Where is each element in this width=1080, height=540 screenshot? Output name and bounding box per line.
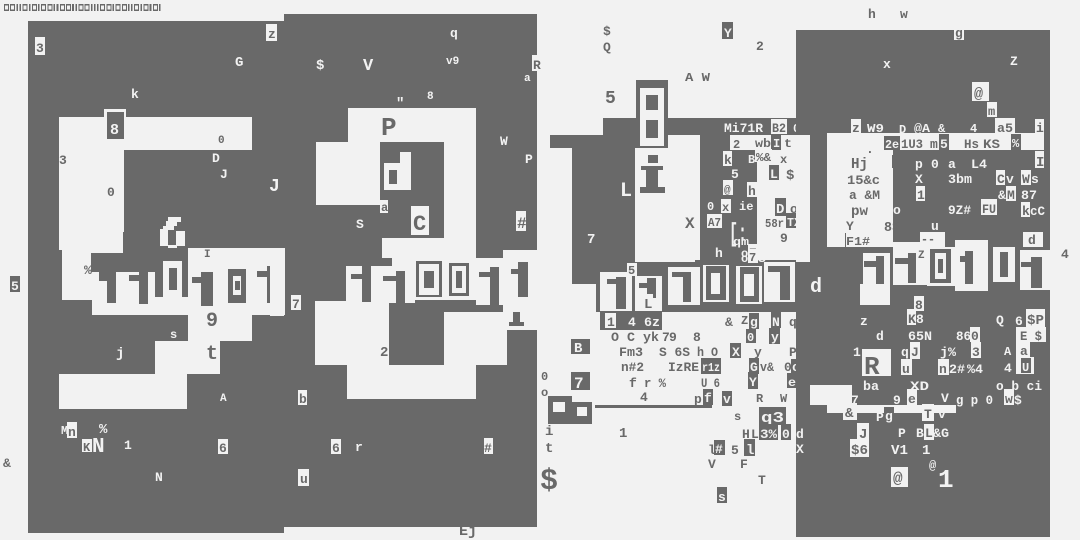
svg-text:i: i: [545, 424, 553, 440]
svg-text:4: 4: [1004, 361, 1012, 376]
svg-text:X: X: [685, 215, 695, 233]
svg-text:d: d: [1028, 233, 1036, 248]
svg-text:I: I: [1036, 155, 1044, 171]
svg-text:z: z: [268, 27, 276, 42]
svg-text:": ": [396, 96, 404, 112]
svg-text:3: 3: [972, 345, 980, 360]
svg-text:S: S: [356, 217, 364, 232]
svg-text:o: o: [541, 386, 548, 400]
svg-text:z: z: [860, 314, 868, 329]
svg-text:a &M: a &M: [849, 188, 880, 203]
svg-text:X: X: [732, 345, 740, 360]
svg-text:j: j: [116, 346, 124, 362]
svg-text:f: f: [629, 376, 637, 391]
svg-text:Ej: Ej: [459, 523, 477, 540]
svg-text:ba: ba: [863, 379, 879, 394]
svg-text:KS: KS: [983, 137, 1000, 152]
svg-text:6: 6: [332, 441, 340, 456]
svg-text:--: --: [921, 232, 935, 247]
svg-text:n#2: n#2: [621, 360, 644, 375]
svg-text:0: 0: [784, 360, 792, 375]
svg-text:5: 5: [731, 443, 739, 458]
svg-text:Hj: Hj: [851, 156, 868, 173]
svg-text:X: X: [915, 172, 923, 187]
svg-text:W: W: [780, 392, 788, 406]
svg-text:n: n: [939, 362, 947, 377]
svg-text:P: P: [789, 345, 797, 360]
svg-text:@: @: [893, 470, 903, 488]
svg-text:W: W: [500, 134, 508, 149]
svg-text:&: &: [845, 406, 854, 422]
svg-text:V: V: [941, 391, 949, 406]
svg-text:Mi71R: Mi71R: [724, 121, 763, 136]
svg-text:u: u: [300, 472, 308, 487]
svg-text:v: v: [1006, 172, 1014, 187]
svg-text:k: k: [1022, 204, 1030, 219]
svg-text:B: B: [916, 426, 924, 441]
svg-text:a: a: [524, 73, 531, 85]
svg-text:%: %: [84, 263, 92, 278]
svg-text:d: d: [810, 276, 822, 299]
svg-text:e: e: [908, 392, 916, 407]
svg-text:$6: $6: [851, 443, 868, 459]
svg-text:J: J: [269, 177, 280, 197]
svg-text:A: A: [1004, 345, 1012, 359]
svg-text:h: h: [748, 184, 756, 199]
svg-text:G: G: [235, 55, 243, 71]
svg-text:1: 1: [917, 188, 925, 203]
svg-text:D: D: [212, 151, 220, 166]
svg-text:K: K: [83, 441, 91, 455]
svg-text:d: d: [876, 329, 884, 344]
svg-text:a: a: [1020, 344, 1028, 359]
svg-text:E $: E $: [1020, 329, 1042, 344]
svg-text:h: h: [715, 246, 723, 261]
svg-text:V1: V1: [891, 443, 908, 459]
svg-text:B: B: [748, 153, 755, 167]
svg-text:8: 8: [110, 122, 119, 139]
svg-text:D: D: [776, 202, 784, 218]
svg-text:V: V: [363, 57, 374, 76]
svg-text:g: g: [885, 409, 893, 424]
svg-text:u: u: [902, 362, 910, 377]
svg-text:s: s: [170, 328, 177, 342]
svg-text:7: 7: [574, 375, 584, 393]
svg-text:&G: &G: [933, 426, 949, 441]
svg-text:5: 5: [605, 89, 616, 109]
svg-text:X: X: [796, 442, 804, 457]
svg-text:Y: Y: [846, 219, 854, 234]
svg-text:2: 2: [756, 39, 764, 54]
svg-text:q: q: [789, 315, 797, 330]
svg-text:5: 5: [940, 137, 948, 152]
svg-text:N: N: [772, 315, 780, 330]
svg-text:d: d: [796, 427, 804, 442]
svg-text:0: 0: [218, 135, 225, 147]
svg-text:m: m: [988, 105, 995, 119]
svg-text:5: 5: [731, 167, 739, 182]
svg-text:58r: 58r: [765, 217, 784, 231]
svg-text:r %: r %: [644, 376, 666, 391]
svg-text:P: P: [876, 410, 884, 425]
svg-text:v: v: [723, 392, 731, 407]
svg-text:s: s: [1031, 172, 1039, 187]
svg-text:1: 1: [922, 443, 930, 459]
svg-text:o: o: [893, 203, 901, 218]
svg-text:I: I: [204, 249, 211, 261]
svg-text:S: S: [758, 251, 766, 266]
svg-text:15&c: 15&c: [847, 173, 880, 188]
svg-text:J: J: [220, 167, 228, 182]
svg-text:k: k: [724, 153, 732, 168]
svg-text:K: K: [908, 312, 916, 327]
svg-text:6z: 6z: [644, 315, 660, 330]
svg-text:#: #: [517, 215, 527, 233]
svg-text:s: s: [718, 490, 726, 505]
svg-text:8: 8: [916, 312, 924, 327]
svg-text:n: n: [68, 425, 76, 440]
svg-text:.: .: [866, 142, 874, 157]
svg-text:4: 4: [640, 390, 648, 405]
svg-text:M: M: [1007, 188, 1015, 203]
svg-text:R: R: [533, 58, 541, 73]
svg-text:Z: Z: [741, 314, 748, 328]
svg-text:s: s: [734, 410, 741, 424]
svg-text:v: v: [938, 407, 946, 422]
svg-text:W: W: [1022, 172, 1030, 187]
svg-text:b: b: [299, 392, 307, 407]
svg-text:0: 0: [971, 329, 979, 344]
svg-text:N: N: [155, 470, 163, 485]
svg-text:6: 6: [1015, 314, 1023, 329]
svg-text:2e: 2e: [885, 138, 899, 152]
svg-text:&: &: [998, 188, 1006, 203]
svg-text:1: 1: [607, 315, 615, 330]
svg-text:#: #: [484, 441, 492, 456]
svg-text:F1#: F1#: [846, 235, 870, 249]
svg-text:C: C: [413, 212, 426, 237]
svg-text:h: h: [868, 7, 876, 22]
svg-text:ie: ie: [739, 200, 753, 214]
svg-text:a: a: [948, 157, 956, 172]
svg-text:B: B: [574, 341, 583, 357]
svg-text:O C yk: O C yk: [611, 330, 659, 345]
svg-text:cC: cC: [1030, 204, 1045, 219]
svg-text:F: F: [740, 457, 748, 472]
svg-text:2: 2: [733, 138, 740, 152]
svg-text:8$: 8$: [884, 220, 900, 236]
svg-text:Z: Z: [1010, 54, 1018, 69]
svg-text:9: 9: [206, 310, 218, 333]
svg-text:U: U: [389, 134, 395, 145]
svg-text:$P: $P: [1027, 313, 1044, 329]
svg-text:Y: Y: [749, 375, 757, 390]
svg-text:y: y: [771, 330, 779, 345]
svg-text:y: y: [754, 345, 762, 360]
svg-text:7: 7: [587, 232, 595, 248]
svg-text:0: 0: [707, 200, 714, 214]
svg-text:B2: B2: [772, 121, 786, 136]
svg-text:P: P: [525, 152, 533, 167]
svg-text:C: C: [997, 172, 1005, 187]
svg-text:4: 4: [1061, 247, 1069, 262]
svg-text:7: 7: [292, 297, 300, 312]
svg-text:3: 3: [59, 153, 67, 168]
svg-text:6: 6: [219, 441, 227, 456]
svg-text:R: R: [864, 352, 880, 382]
svg-text:0: 0: [541, 370, 548, 384]
svg-text:$: $: [786, 168, 794, 184]
svg-text:1: 1: [619, 426, 627, 442]
svg-text:g: g: [955, 26, 963, 41]
svg-text:8: 8: [915, 298, 923, 313]
svg-text:v9: v9: [446, 56, 459, 68]
svg-text:w: w: [1005, 392, 1013, 407]
svg-text:7: 7: [749, 251, 756, 265]
svg-text:P: P: [898, 426, 906, 441]
svg-text:T: T: [758, 473, 766, 488]
svg-text:U 6: U 6: [701, 376, 720, 391]
svg-text:L: L: [620, 180, 632, 203]
svg-text:$: $: [1014, 393, 1022, 408]
svg-text:S 6S: S 6S: [659, 345, 690, 360]
svg-text:x: x: [722, 201, 729, 215]
svg-text:1: 1: [938, 465, 954, 495]
svg-text:wb: wb: [755, 137, 771, 151]
svg-text:IzRE: IzRE: [668, 360, 699, 375]
svg-text:f: f: [704, 391, 712, 406]
svg-text:0: 0: [782, 427, 790, 442]
svg-text:h: h: [656, 251, 664, 266]
svg-text:@: @: [929, 459, 936, 473]
svg-text:%&: %&: [756, 151, 772, 165]
svg-text:9Z#: 9Z#: [948, 203, 971, 218]
svg-text:Hs: Hs: [964, 137, 979, 152]
svg-text:Fm3: Fm3: [619, 345, 643, 360]
svg-text:%4: %4: [967, 362, 983, 377]
svg-text:g: g: [750, 315, 758, 330]
svg-text:8: 8: [693, 330, 701, 345]
svg-text:%: %: [1012, 137, 1020, 151]
svg-text:q: q: [450, 26, 458, 41]
svg-text:x: x: [780, 153, 787, 167]
svg-text:pw: pw: [851, 204, 869, 220]
svg-text:2#: 2#: [949, 362, 965, 377]
svg-text:a: a: [381, 201, 388, 215]
svg-text:3bm: 3bm: [948, 172, 972, 187]
svg-text:Z: Z: [918, 250, 925, 262]
svg-text:3%: 3%: [760, 427, 777, 442]
svg-text:9: 9: [780, 231, 788, 246]
svg-text:$: $: [540, 465, 558, 499]
svg-text:g p 0: g p 0: [956, 393, 993, 408]
svg-text:9: 9: [669, 330, 677, 345]
svg-text:L: L: [925, 426, 933, 441]
svg-text:r: r: [355, 440, 363, 455]
svg-text:L4: L4: [971, 157, 987, 172]
svg-text:x: x: [883, 57, 891, 72]
svg-text:#: #: [715, 442, 723, 457]
svg-text:0: 0: [107, 185, 115, 200]
svg-text:65N: 65N: [908, 329, 932, 344]
svg-text:&: &: [725, 315, 733, 330]
svg-text:p: p: [915, 157, 923, 172]
svg-text:q: q: [901, 345, 909, 360]
svg-text:$: $: [316, 58, 324, 74]
svg-text:N: N: [92, 436, 105, 459]
svg-text:A W: A W: [685, 71, 711, 85]
svg-text:[:: [:: [729, 219, 747, 249]
svg-text:w: w: [900, 7, 908, 22]
svg-text:R: R: [756, 392, 764, 406]
svg-text:t: t: [545, 441, 553, 457]
svg-text:1: 1: [853, 345, 861, 360]
svg-text:$: $: [603, 24, 611, 39]
svg-text:o: o: [741, 252, 748, 266]
svg-text:0: 0: [747, 331, 754, 345]
svg-text:T: T: [924, 407, 932, 422]
svg-text:86: 86: [956, 329, 971, 344]
svg-text:L: L: [770, 167, 778, 182]
svg-text:Y: Y: [724, 26, 732, 41]
svg-text:J: J: [911, 345, 919, 360]
svg-text:L: L: [644, 297, 652, 313]
svg-text:Q: Q: [996, 313, 1004, 328]
svg-text:3: 3: [36, 41, 44, 56]
svg-text:1U3: 1U3: [901, 137, 923, 152]
svg-text:@: @: [724, 185, 731, 197]
svg-text:@: @: [974, 86, 983, 103]
svg-text:U: U: [1022, 361, 1029, 375]
svg-text:h O: h O: [697, 345, 718, 360]
svg-text:k: k: [131, 87, 139, 102]
svg-text:V: V: [708, 457, 716, 472]
svg-text:1: 1: [124, 438, 132, 453]
svg-text:0: 0: [931, 157, 939, 172]
svg-text:o b ci: o b ci: [996, 379, 1042, 394]
svg-text:A: A: [220, 393, 227, 405]
svg-text:A7: A7: [708, 216, 721, 230]
svg-text:Q: Q: [603, 40, 611, 55]
svg-text:&: &: [3, 456, 11, 471]
svg-text:2: 2: [380, 345, 388, 361]
svg-text:m: m: [930, 137, 938, 152]
svg-text:v&: v&: [760, 360, 774, 375]
svg-text:t: t: [206, 343, 218, 366]
svg-text:j%: j%: [940, 345, 956, 360]
svg-text:4: 4: [628, 315, 636, 330]
svg-text:r1z: r1z: [702, 361, 720, 375]
svg-text:I: I: [773, 137, 780, 151]
svg-text:5: 5: [628, 264, 635, 278]
svg-text:5: 5: [11, 279, 19, 294]
svg-text:FU: FU: [982, 202, 996, 217]
svg-text:87: 87: [1021, 188, 1037, 203]
svg-text:8: 8: [427, 91, 434, 103]
svg-text:p: p: [694, 392, 702, 407]
